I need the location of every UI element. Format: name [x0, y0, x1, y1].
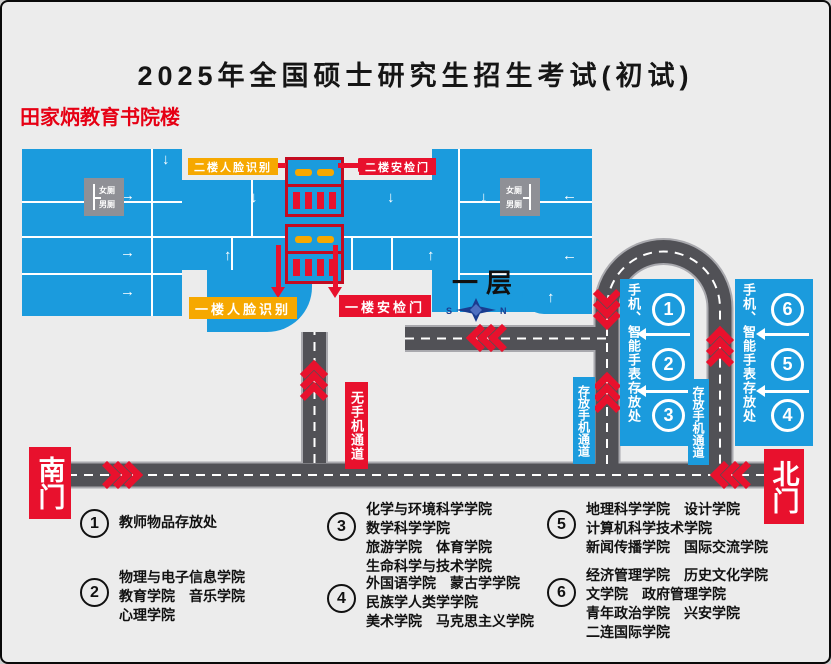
flow-chevrons-east-icon: [97, 465, 139, 485]
security-gate-1f-label: 一楼安检门: [339, 295, 431, 317]
direction-arrow-icon: ↑: [427, 248, 435, 263]
direction-arrow-icon: →: [120, 284, 135, 299]
legend-text: 化学与环境科学学院 数学科学学院 旅游学院 体育学院 生命科学与技术学院: [366, 500, 492, 576]
zone-number: 5: [771, 348, 804, 381]
pointer-arrow-icon: [338, 163, 358, 168]
pointer-arrow-icon: [333, 245, 338, 287]
toilet-female-label: 女厕: [99, 185, 124, 196]
legend-text: 经济管理学院 历史文化学院 文学院 政府管理学院 青年政治学院 兴安学院 二连国…: [586, 566, 768, 642]
store-phone-channel-label: 存放手机通道: [688, 379, 709, 465]
legend-text: 地理科学学院 设计学院 计算机科学技术学院 新闻传播学院 国际交流学院: [586, 500, 768, 557]
legend-number: 1: [80, 509, 109, 538]
legend-item: 1 教师物品存放处: [80, 509, 217, 538]
legend-item: 4 外国语学院 蒙古学学院 民族学人类学学院 美术学院 马克思主义学院: [327, 574, 534, 631]
zone-number: 1: [652, 293, 685, 326]
zone-number: 6: [771, 293, 804, 326]
wall: [22, 236, 182, 238]
wall: [391, 236, 393, 270]
direction-arrow-icon: ↓: [162, 152, 170, 167]
flow-chevrons-north-icon: [597, 376, 617, 418]
legend-item: 2 物理与电子信息学院 教育学院 音乐学院 心理学院: [80, 568, 245, 625]
legend-item: 3 化学与环境科学学院 数学科学学院 旅游学院 体育学院 生命科学与技术学院: [327, 500, 492, 576]
toilet-right: 女厕 男厕: [500, 178, 540, 216]
wall: [22, 273, 182, 275]
legend-number: 4: [327, 584, 356, 613]
flow-chevrons-west-icon: [714, 465, 756, 485]
left-arrow-icon: [646, 333, 690, 336]
gate-pillars: [288, 187, 341, 214]
direction-arrow-icon: ←: [562, 188, 577, 203]
wall: [151, 149, 153, 316]
flow-chevrons-north-icon: [304, 364, 324, 406]
left-arrow-icon: [646, 390, 690, 393]
legend-number: 5: [547, 510, 576, 539]
toilet-female-label: 女厕: [506, 185, 540, 196]
wall: [432, 236, 592, 238]
storage-panel-label: 手机、智能手表存放处: [739, 283, 758, 442]
direction-arrow-icon: ↓: [480, 190, 488, 205]
compass-icon: S N: [444, 294, 508, 326]
legend-text: 物理与电子信息学院 教育学院 音乐学院 心理学院: [119, 568, 245, 625]
storage-panel-label: 手机、智能手表存放处: [624, 283, 643, 442]
compass-north-label: N: [500, 306, 507, 316]
north-gate-label: 北门: [764, 449, 804, 524]
legend-text: 教师物品存放处: [119, 513, 217, 532]
compass-south-label: S: [446, 306, 452, 316]
legend-item: 5 地理科学学院 设计学院 计算机科学技术学院 新闻传播学院 国际交流学院: [547, 500, 768, 557]
legend-text: 外国语学院 蒙古学学院 民族学人类学学院 美术学院 马克思主义学院: [366, 574, 534, 631]
legend-number: 2: [80, 578, 109, 607]
security-gate-2f-icon: [285, 157, 344, 217]
legend-item: 6 经济管理学院 历史文化学院 文学院 政府管理学院 青年政治学院 兴安学院 二…: [547, 566, 768, 642]
direction-arrow-icon: ↓: [250, 190, 258, 205]
gate-sensors: [288, 160, 341, 187]
direction-arrow-icon: ←: [562, 248, 577, 263]
no-phone-channel-label: 无手机通道: [345, 382, 368, 469]
face-recognition-2f-label: 二楼人脸识别: [188, 158, 278, 175]
flow-chevrons-south-icon: [597, 284, 617, 326]
left-arrow-icon: [765, 390, 809, 393]
direction-arrow-icon: ↓: [387, 190, 395, 205]
wall: [351, 236, 353, 270]
toilet-male-label: 男厕: [506, 199, 540, 210]
pointer-arrow-icon: [276, 245, 281, 287]
toilet-left: 女厕 男厕: [84, 178, 124, 216]
face-recognition-1f-label: 一楼人脸识别: [189, 297, 297, 319]
legend-number: 3: [327, 512, 356, 541]
toilet-divider-icon: [93, 184, 95, 210]
building-lower-right: [522, 270, 592, 314]
zone-number: 3: [652, 399, 685, 432]
storage-panel-left: 手机、智能手表存放处 1 2 3: [620, 279, 694, 446]
flow-chevrons-north-icon: [710, 330, 730, 372]
security-gate-2f-label: 二楼安检门: [359, 158, 436, 175]
south-gate-label: 南门: [29, 447, 71, 519]
storage-panel-right: 手机、智能手表存放处 6 5 4: [735, 279, 813, 446]
direction-arrow-icon: ↑: [224, 248, 232, 263]
building-left-wing: [22, 149, 182, 316]
left-arrow-icon: [765, 333, 809, 336]
exam-map: 2025年全国硕士研究生招生考试(初试) 田家炳教育书院楼: [0, 0, 831, 664]
store-phone-channel-label: 存放手机通道: [573, 377, 595, 464]
direction-arrow-icon: ↑: [547, 290, 555, 305]
flow-chevrons-west-icon: [470, 328, 512, 348]
zone-number: 4: [771, 399, 804, 432]
zone-number: 2: [652, 348, 685, 381]
toilet-divider-icon: [529, 184, 531, 210]
direction-arrow-icon: →: [120, 245, 135, 260]
legend-number: 6: [547, 578, 576, 607]
toilet-male-label: 男厕: [99, 199, 124, 210]
